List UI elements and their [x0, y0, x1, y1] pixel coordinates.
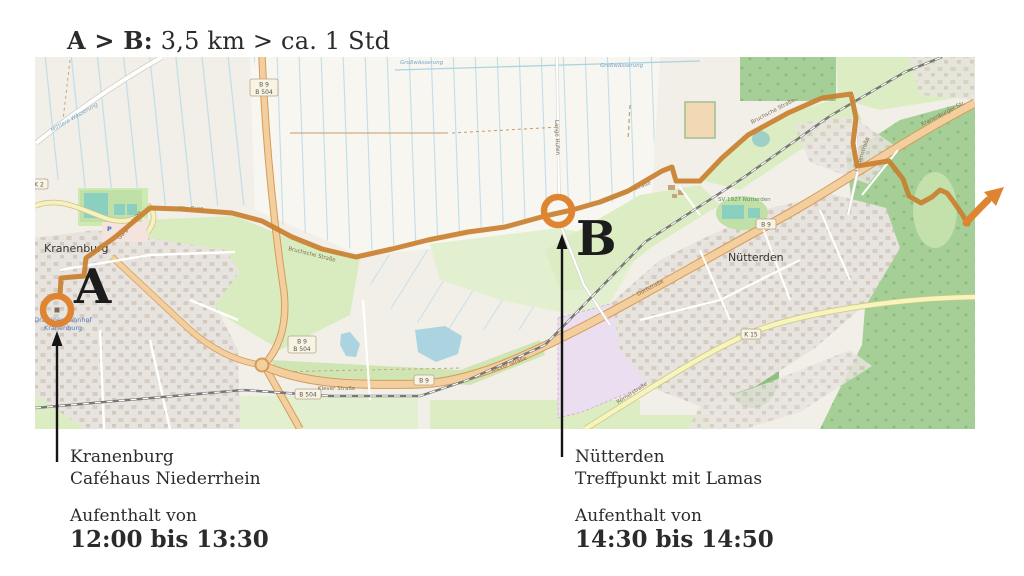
campground [685, 102, 715, 138]
svg-text:B 9: B 9 [761, 222, 771, 229]
stop-info-b: Nütterden Treffpunkt mit Lamas Aufenthal… [575, 446, 855, 554]
water-label-grosswaesserung2: Großwässerung [400, 60, 444, 66]
poi-label-sports-club: SV 1927 Nütterden [718, 197, 771, 203]
stop-b-time-range: 14:30 bis 14:50 [575, 527, 855, 553]
stop-b-detail: Treffpunkt mit Lamas [575, 468, 855, 490]
town-label-nuetterden: Nütterden [728, 251, 784, 264]
page-title: A > B:3,5 km > ca. 1 Std [67, 26, 390, 55]
station-dot [55, 308, 60, 313]
road-label-klever: Klever Straße [318, 386, 356, 392]
stop-a-stay-label: Aufenthalt von [70, 505, 350, 527]
svg-text:K 2: K 2 [34, 182, 44, 189]
svg-text:B 504: B 504 [255, 89, 273, 96]
svg-text:B 9: B 9 [259, 82, 269, 89]
stop-b-stay-label: Aufenthalt von [575, 505, 855, 527]
svg-text:B 9: B 9 [419, 378, 429, 385]
marker-b-letter: B [576, 215, 617, 263]
marker-a-letter: A [74, 263, 111, 311]
svg-text:B 9: B 9 [297, 339, 307, 346]
water-label-grosswaesserung: Großwässerung [600, 63, 644, 69]
forest-texture [740, 57, 836, 101]
meadow [238, 396, 418, 429]
title-route-label: A > B: [67, 26, 153, 55]
stop-info-a: Kranenburg Caféhaus Niederrhein Aufentha… [70, 446, 350, 554]
stop-a-place: Kranenburg [70, 446, 350, 468]
svg-text:B 504: B 504 [299, 392, 317, 399]
sports-pitch [748, 208, 760, 218]
stop-b-place: Nütterden [575, 446, 855, 468]
stop-a-detail: Caféhaus Niederrhein [70, 468, 350, 490]
road-label-lange-hufen: Lange Hufen [553, 120, 560, 156]
sports-pitch [114, 204, 125, 215]
parking-icon: P [107, 225, 112, 233]
ditch-field [40, 57, 255, 206]
svg-text:B 504: B 504 [293, 346, 311, 353]
meadow [560, 415, 710, 429]
route-infographic: B 9 B 504 B 9 B 504 B 504 B 9 B 9 K 15 K… [0, 0, 1024, 576]
map-base: B 9 B 504 B 9 B 504 B 504 B 9 B 9 K 15 K… [30, 57, 975, 429]
stop-a-time-range: 12:00 bis 13:30 [70, 527, 350, 553]
svg-text:K 15: K 15 [744, 332, 758, 339]
sports-pitch [722, 205, 744, 219]
title-distance-duration: 3,5 km > ca. 1 Std [161, 27, 390, 55]
forest-clearing [913, 172, 957, 248]
